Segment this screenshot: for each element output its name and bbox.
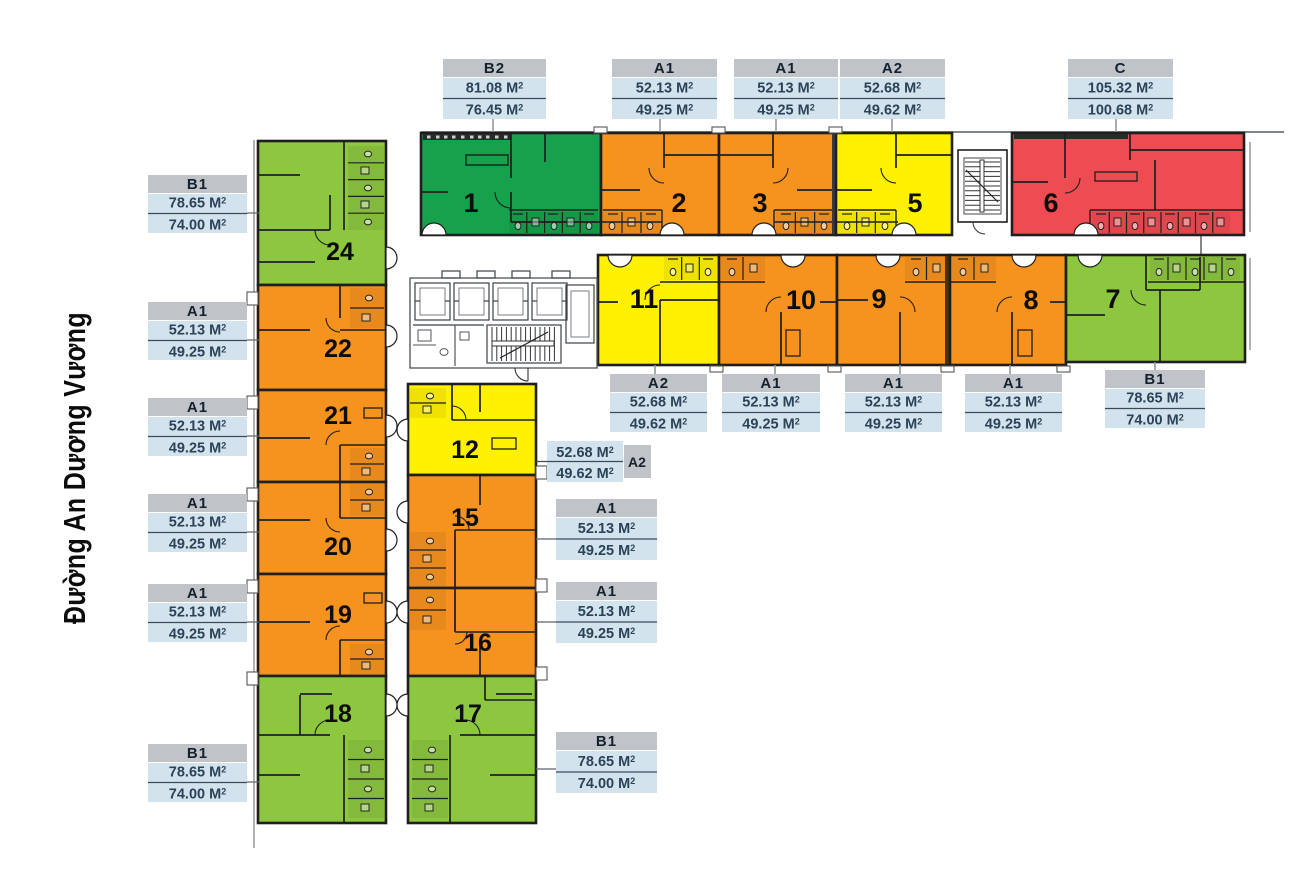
svg-text:A1: A1 — [187, 495, 208, 512]
svg-text:A1: A1 — [760, 375, 781, 392]
svg-text:52.13 M2: 52.13 M2 — [578, 604, 635, 620]
svg-text:8: 8 — [1023, 285, 1038, 315]
svg-text:Đường An Dương Vương: Đường An Dương Vương — [57, 312, 92, 624]
svg-text:52.13 M2: 52.13 M2 — [636, 81, 693, 97]
svg-text:12: 12 — [451, 436, 479, 464]
svg-text:9: 9 — [871, 284, 886, 314]
svg-text:49.62 M2: 49.62 M2 — [556, 466, 613, 482]
svg-text:7: 7 — [1105, 284, 1120, 314]
svg-text:78.65 M2: 78.65 M2 — [578, 754, 635, 770]
svg-text:49.25 M2: 49.25 M2 — [169, 627, 226, 643]
svg-text:52.13 M2: 52.13 M2 — [742, 395, 799, 411]
svg-text:74.00 M2: 74.00 M2 — [169, 218, 226, 234]
svg-text:A1: A1 — [654, 60, 675, 77]
svg-text:20: 20 — [324, 533, 352, 561]
svg-text:52.68 M2: 52.68 M2 — [556, 445, 613, 461]
svg-text:52.13 M2: 52.13 M2 — [985, 395, 1042, 411]
svg-text:A1: A1 — [883, 375, 904, 392]
svg-text:A1: A1 — [187, 585, 208, 602]
svg-text:78.65 M2: 78.65 M2 — [169, 196, 226, 212]
svg-text:49.25 M2: 49.25 M2 — [169, 537, 226, 553]
svg-text:52.13 M2: 52.13 M2 — [865, 395, 922, 411]
svg-text:3: 3 — [752, 188, 767, 218]
svg-text:A1: A1 — [187, 399, 208, 416]
svg-text:6: 6 — [1043, 188, 1058, 218]
svg-text:22: 22 — [324, 335, 352, 363]
svg-text:21: 21 — [324, 402, 352, 430]
svg-text:74.00 M2: 74.00 M2 — [578, 776, 635, 792]
svg-text:100.68 M2: 100.68 M2 — [1088, 103, 1153, 119]
svg-text:18: 18 — [324, 700, 352, 728]
svg-text:24: 24 — [326, 238, 354, 266]
svg-text:A2: A2 — [882, 60, 903, 77]
svg-text:74.00 M2: 74.00 M2 — [169, 787, 226, 803]
svg-text:49.25 M2: 49.25 M2 — [169, 441, 226, 457]
svg-text:49.25 M2: 49.25 M2 — [742, 417, 799, 433]
svg-text:A1: A1 — [596, 583, 617, 600]
svg-text:52.13 M2: 52.13 M2 — [757, 81, 814, 97]
svg-text:49.62 M2: 49.62 M2 — [630, 417, 687, 433]
svg-text:81.08 M2: 81.08 M2 — [466, 81, 523, 97]
svg-text:49.25 M2: 49.25 M2 — [985, 417, 1042, 433]
svg-text:15: 15 — [451, 504, 479, 532]
svg-text:52.13 M2: 52.13 M2 — [169, 323, 226, 339]
svg-text:52.13 M2: 52.13 M2 — [169, 419, 226, 435]
svg-text:A1: A1 — [1003, 375, 1024, 392]
svg-text:52.13 M2: 52.13 M2 — [169, 515, 226, 531]
svg-text:A2: A2 — [648, 375, 669, 392]
svg-text:49.25 M2: 49.25 M2 — [169, 345, 226, 361]
svg-text:78.65 M2: 78.65 M2 — [169, 765, 226, 781]
svg-text:49.25 M2: 49.25 M2 — [578, 626, 635, 642]
svg-text:A1: A1 — [775, 60, 796, 77]
svg-text:76.45 M2: 76.45 M2 — [466, 103, 523, 119]
svg-text:52.68 M2: 52.68 M2 — [864, 81, 921, 97]
svg-text:49.25 M2: 49.25 M2 — [865, 417, 922, 433]
svg-text:49.62 M2: 49.62 M2 — [864, 103, 921, 119]
svg-text:49.25 M2: 49.25 M2 — [757, 103, 814, 119]
svg-text:1: 1 — [463, 188, 478, 218]
svg-text:74.00 M2: 74.00 M2 — [1126, 413, 1183, 429]
svg-text:52.68 M2: 52.68 M2 — [630, 395, 687, 411]
svg-text:49.25 M2: 49.25 M2 — [636, 103, 693, 119]
svg-text:10: 10 — [786, 285, 816, 315]
svg-text:C: C — [1115, 60, 1127, 77]
svg-text:105.32 M2: 105.32 M2 — [1088, 81, 1153, 97]
svg-text:52.13 M2: 52.13 M2 — [578, 521, 635, 537]
svg-text:A2: A2 — [628, 454, 646, 470]
svg-text:49.25 M2: 49.25 M2 — [578, 543, 635, 559]
svg-text:B2: B2 — [484, 60, 505, 77]
svg-text:16: 16 — [464, 629, 492, 657]
svg-text:A1: A1 — [596, 500, 617, 517]
svg-text:52.13 M2: 52.13 M2 — [169, 605, 226, 621]
svg-text:78.65 M2: 78.65 M2 — [1126, 391, 1183, 407]
svg-text:17: 17 — [454, 700, 482, 728]
svg-text:19: 19 — [324, 601, 352, 629]
svg-text:A1: A1 — [187, 303, 208, 320]
svg-text:11: 11 — [630, 284, 659, 314]
svg-text:B1: B1 — [187, 745, 208, 762]
svg-text:2: 2 — [671, 188, 686, 218]
svg-text:5: 5 — [907, 188, 922, 218]
svg-text:B1: B1 — [187, 176, 208, 193]
svg-text:B1: B1 — [1144, 371, 1165, 388]
svg-text:B1: B1 — [596, 733, 617, 750]
